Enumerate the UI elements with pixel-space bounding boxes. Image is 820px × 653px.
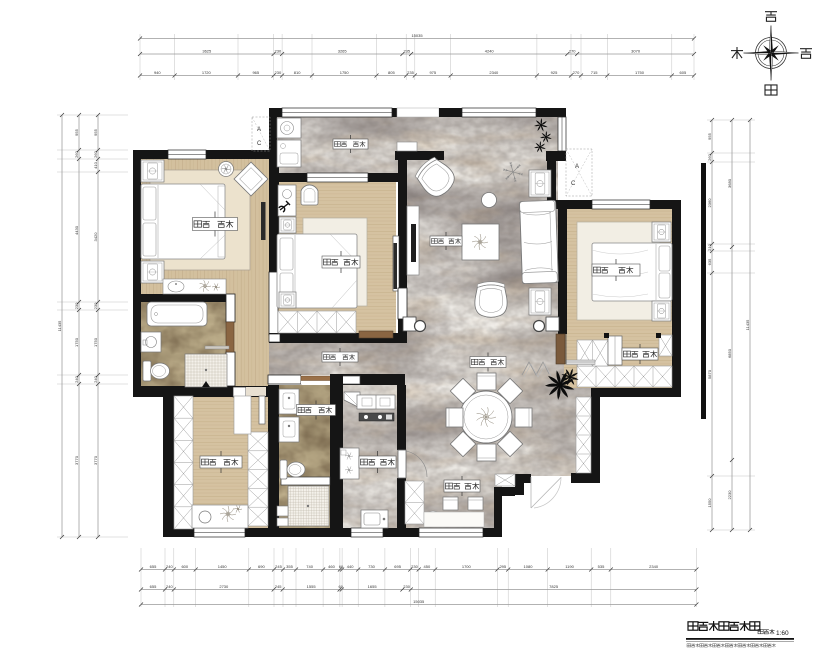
svg-text:1555: 1555 [307,584,317,589]
svg-text:230: 230 [275,70,282,75]
svg-text:940: 940 [154,70,161,75]
svg-text:810: 810 [294,70,301,75]
svg-text:2730: 2730 [219,584,229,589]
svg-text:955: 955 [93,128,98,135]
svg-text:295: 295 [499,564,506,569]
svg-text:210: 210 [707,243,712,250]
svg-text:3625: 3625 [202,49,212,54]
svg-text:535: 535 [598,564,605,569]
svg-text:655: 655 [150,564,157,569]
svg-text:15035: 15035 [411,33,423,38]
svg-text:230: 230 [403,584,410,589]
svg-text:1750: 1750 [635,70,645,75]
svg-text:1655: 1655 [368,584,378,589]
svg-text:635: 635 [707,258,712,265]
svg-text:3680: 3680 [727,178,732,188]
svg-text:5870: 5870 [707,369,712,379]
svg-text:C: C [257,141,262,147]
svg-text:3770: 3770 [74,455,79,465]
svg-text:2230: 2230 [727,490,732,500]
svg-text:260: 260 [707,153,712,160]
svg-text:1720: 1720 [202,70,212,75]
svg-text:245: 245 [275,564,282,569]
svg-text:240: 240 [93,375,98,382]
svg-text:1:60: 1:60 [776,630,789,637]
svg-text:245: 245 [275,584,282,589]
svg-text:11435: 11435 [57,320,62,332]
svg-text:3265: 3265 [338,49,348,54]
svg-text:260: 260 [93,150,98,157]
svg-text:1080: 1080 [524,564,534,569]
svg-text:955: 955 [707,132,712,139]
svg-text:4430: 4430 [74,225,79,235]
svg-text:230: 230 [411,564,418,569]
svg-text:240: 240 [166,584,173,589]
svg-text:260: 260 [74,150,79,157]
svg-text:A: A [575,164,579,170]
svg-text:4240: 4240 [485,49,495,54]
svg-text:1450: 1450 [218,564,228,569]
svg-text:235: 235 [403,49,410,54]
svg-text:1750: 1750 [93,337,98,347]
svg-text:1190: 1190 [565,564,574,569]
svg-text:925: 925 [551,70,558,75]
svg-text:975: 975 [429,70,436,75]
svg-text:965: 965 [252,70,259,75]
svg-text:3770: 3770 [93,455,98,465]
svg-text:690: 690 [258,564,265,569]
svg-text:15035: 15035 [413,599,425,604]
svg-text:C: C [571,181,576,187]
svg-text:2360: 2360 [707,198,712,208]
svg-text:230: 230 [74,302,79,309]
svg-text:695: 695 [394,564,401,569]
svg-text:235: 235 [407,70,414,75]
svg-text:60: 60 [338,584,343,589]
svg-text:270: 270 [573,70,580,75]
svg-text:2340: 2340 [649,564,659,569]
svg-text:1750: 1750 [340,70,350,75]
svg-text:730: 730 [368,564,375,569]
svg-text:270: 270 [569,49,576,54]
svg-text:2340: 2340 [489,70,499,75]
svg-text:355: 355 [286,564,293,569]
svg-text:230: 230 [93,302,98,309]
svg-text:240: 240 [166,564,173,569]
svg-text:240: 240 [74,375,79,382]
svg-text:1750: 1750 [74,337,79,347]
svg-text:3070: 3070 [631,49,641,54]
svg-text:955: 955 [74,128,79,135]
svg-text:440: 440 [347,564,354,569]
svg-text:1700: 1700 [462,564,472,569]
svg-text:A: A [257,127,261,133]
svg-text:410: 410 [93,161,98,168]
svg-text:605: 605 [680,70,687,75]
svg-text:600: 600 [181,564,188,569]
svg-text:655: 655 [150,584,157,589]
svg-text:740: 740 [306,564,313,569]
svg-text:450: 450 [424,564,431,569]
svg-text:230: 230 [275,49,282,54]
svg-text:3420: 3420 [93,232,98,242]
svg-text:715: 715 [591,70,598,75]
svg-text:11435: 11435 [745,319,750,331]
svg-text:1550: 1550 [707,498,712,508]
svg-text:7825: 7825 [549,584,559,589]
svg-text:460: 460 [328,564,335,569]
svg-text:6850: 6850 [727,348,732,358]
svg-text:60: 60 [339,564,344,569]
svg-text:805: 805 [388,70,395,75]
